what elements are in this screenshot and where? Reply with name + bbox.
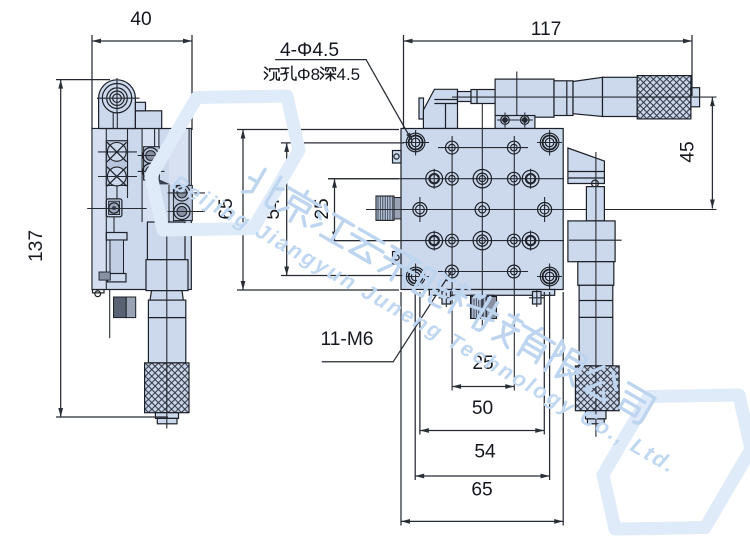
svg-text:65: 65 (471, 480, 492, 501)
svg-text:137: 137 (26, 230, 47, 262)
svg-text:50: 50 (472, 398, 493, 419)
svg-text:4-Φ4.5: 4-Φ4.5 (280, 40, 339, 61)
svg-text:117: 117 (531, 19, 562, 40)
svg-text:11-M6: 11-M6 (321, 329, 374, 350)
svg-text:40: 40 (130, 9, 151, 30)
svg-text:45: 45 (678, 141, 699, 162)
svg-text:4.5: 4.5 (337, 65, 361, 84)
svg-text:Φ8: Φ8 (297, 65, 320, 84)
svg-text:54: 54 (474, 442, 496, 463)
